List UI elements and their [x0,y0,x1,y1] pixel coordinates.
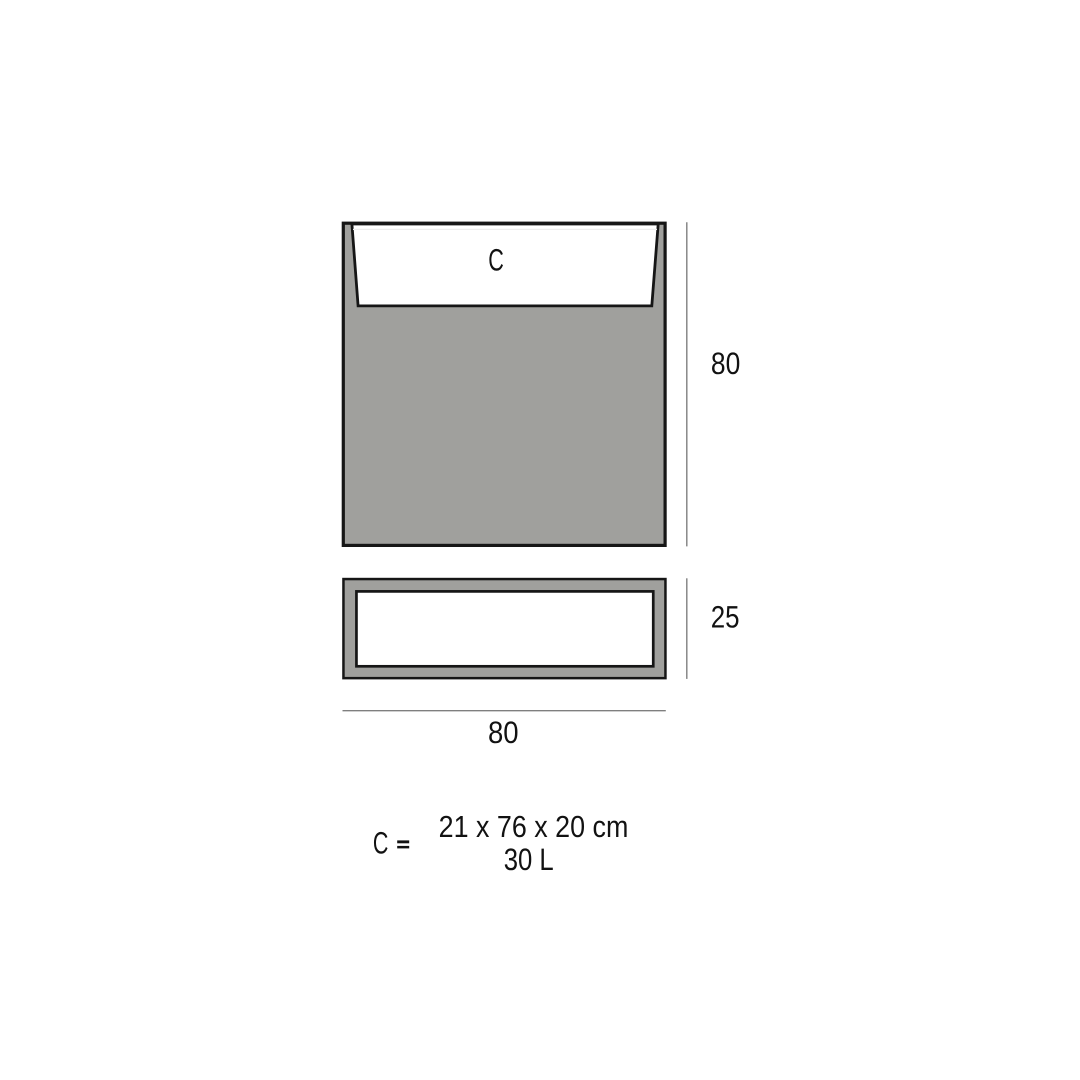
svg-text:25: 25 [711,599,740,634]
svg-text:C: C [488,242,504,277]
svg-text:80: 80 [488,715,519,750]
svg-text:C: C [373,826,389,861]
svg-text:30 L: 30 L [504,842,554,877]
svg-text:21 x 76 x 20 cm: 21 x 76 x 20 cm [439,810,629,844]
svg-text:80: 80 [711,346,740,381]
